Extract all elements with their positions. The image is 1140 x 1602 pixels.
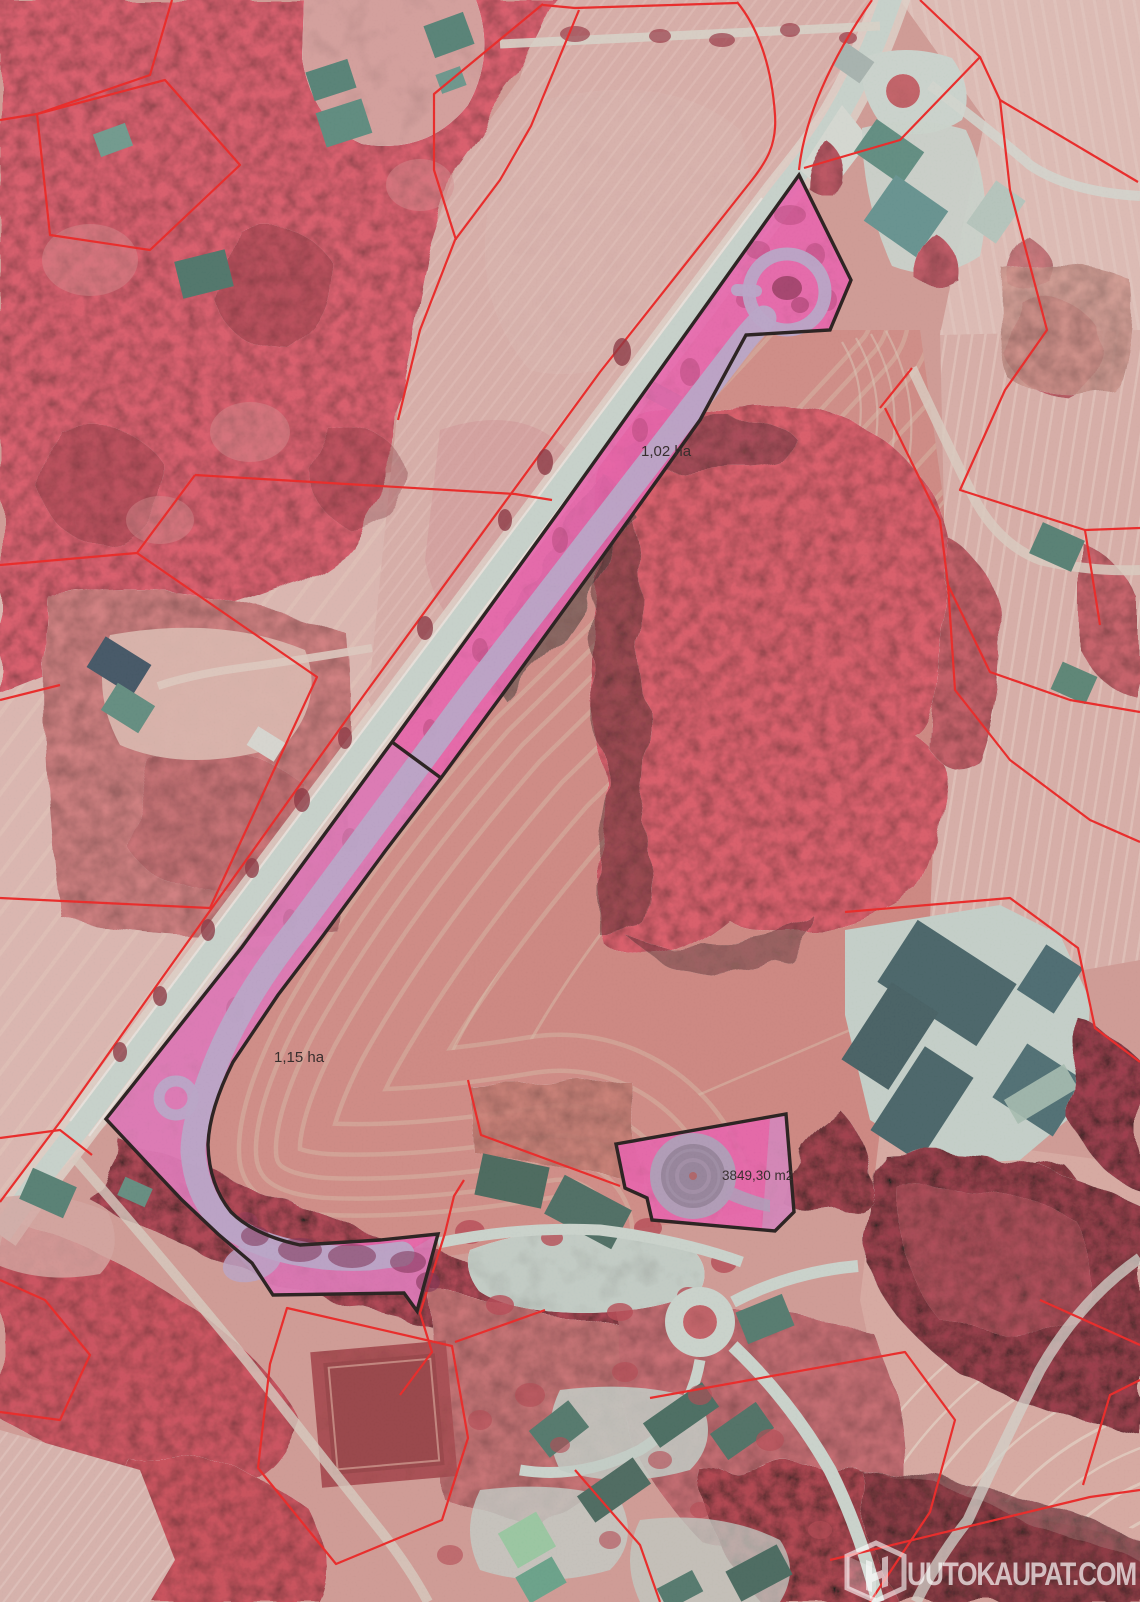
svg-text:UUTOKAUPAT.COM: UUTOKAUPAT.COM bbox=[907, 1556, 1136, 1592]
